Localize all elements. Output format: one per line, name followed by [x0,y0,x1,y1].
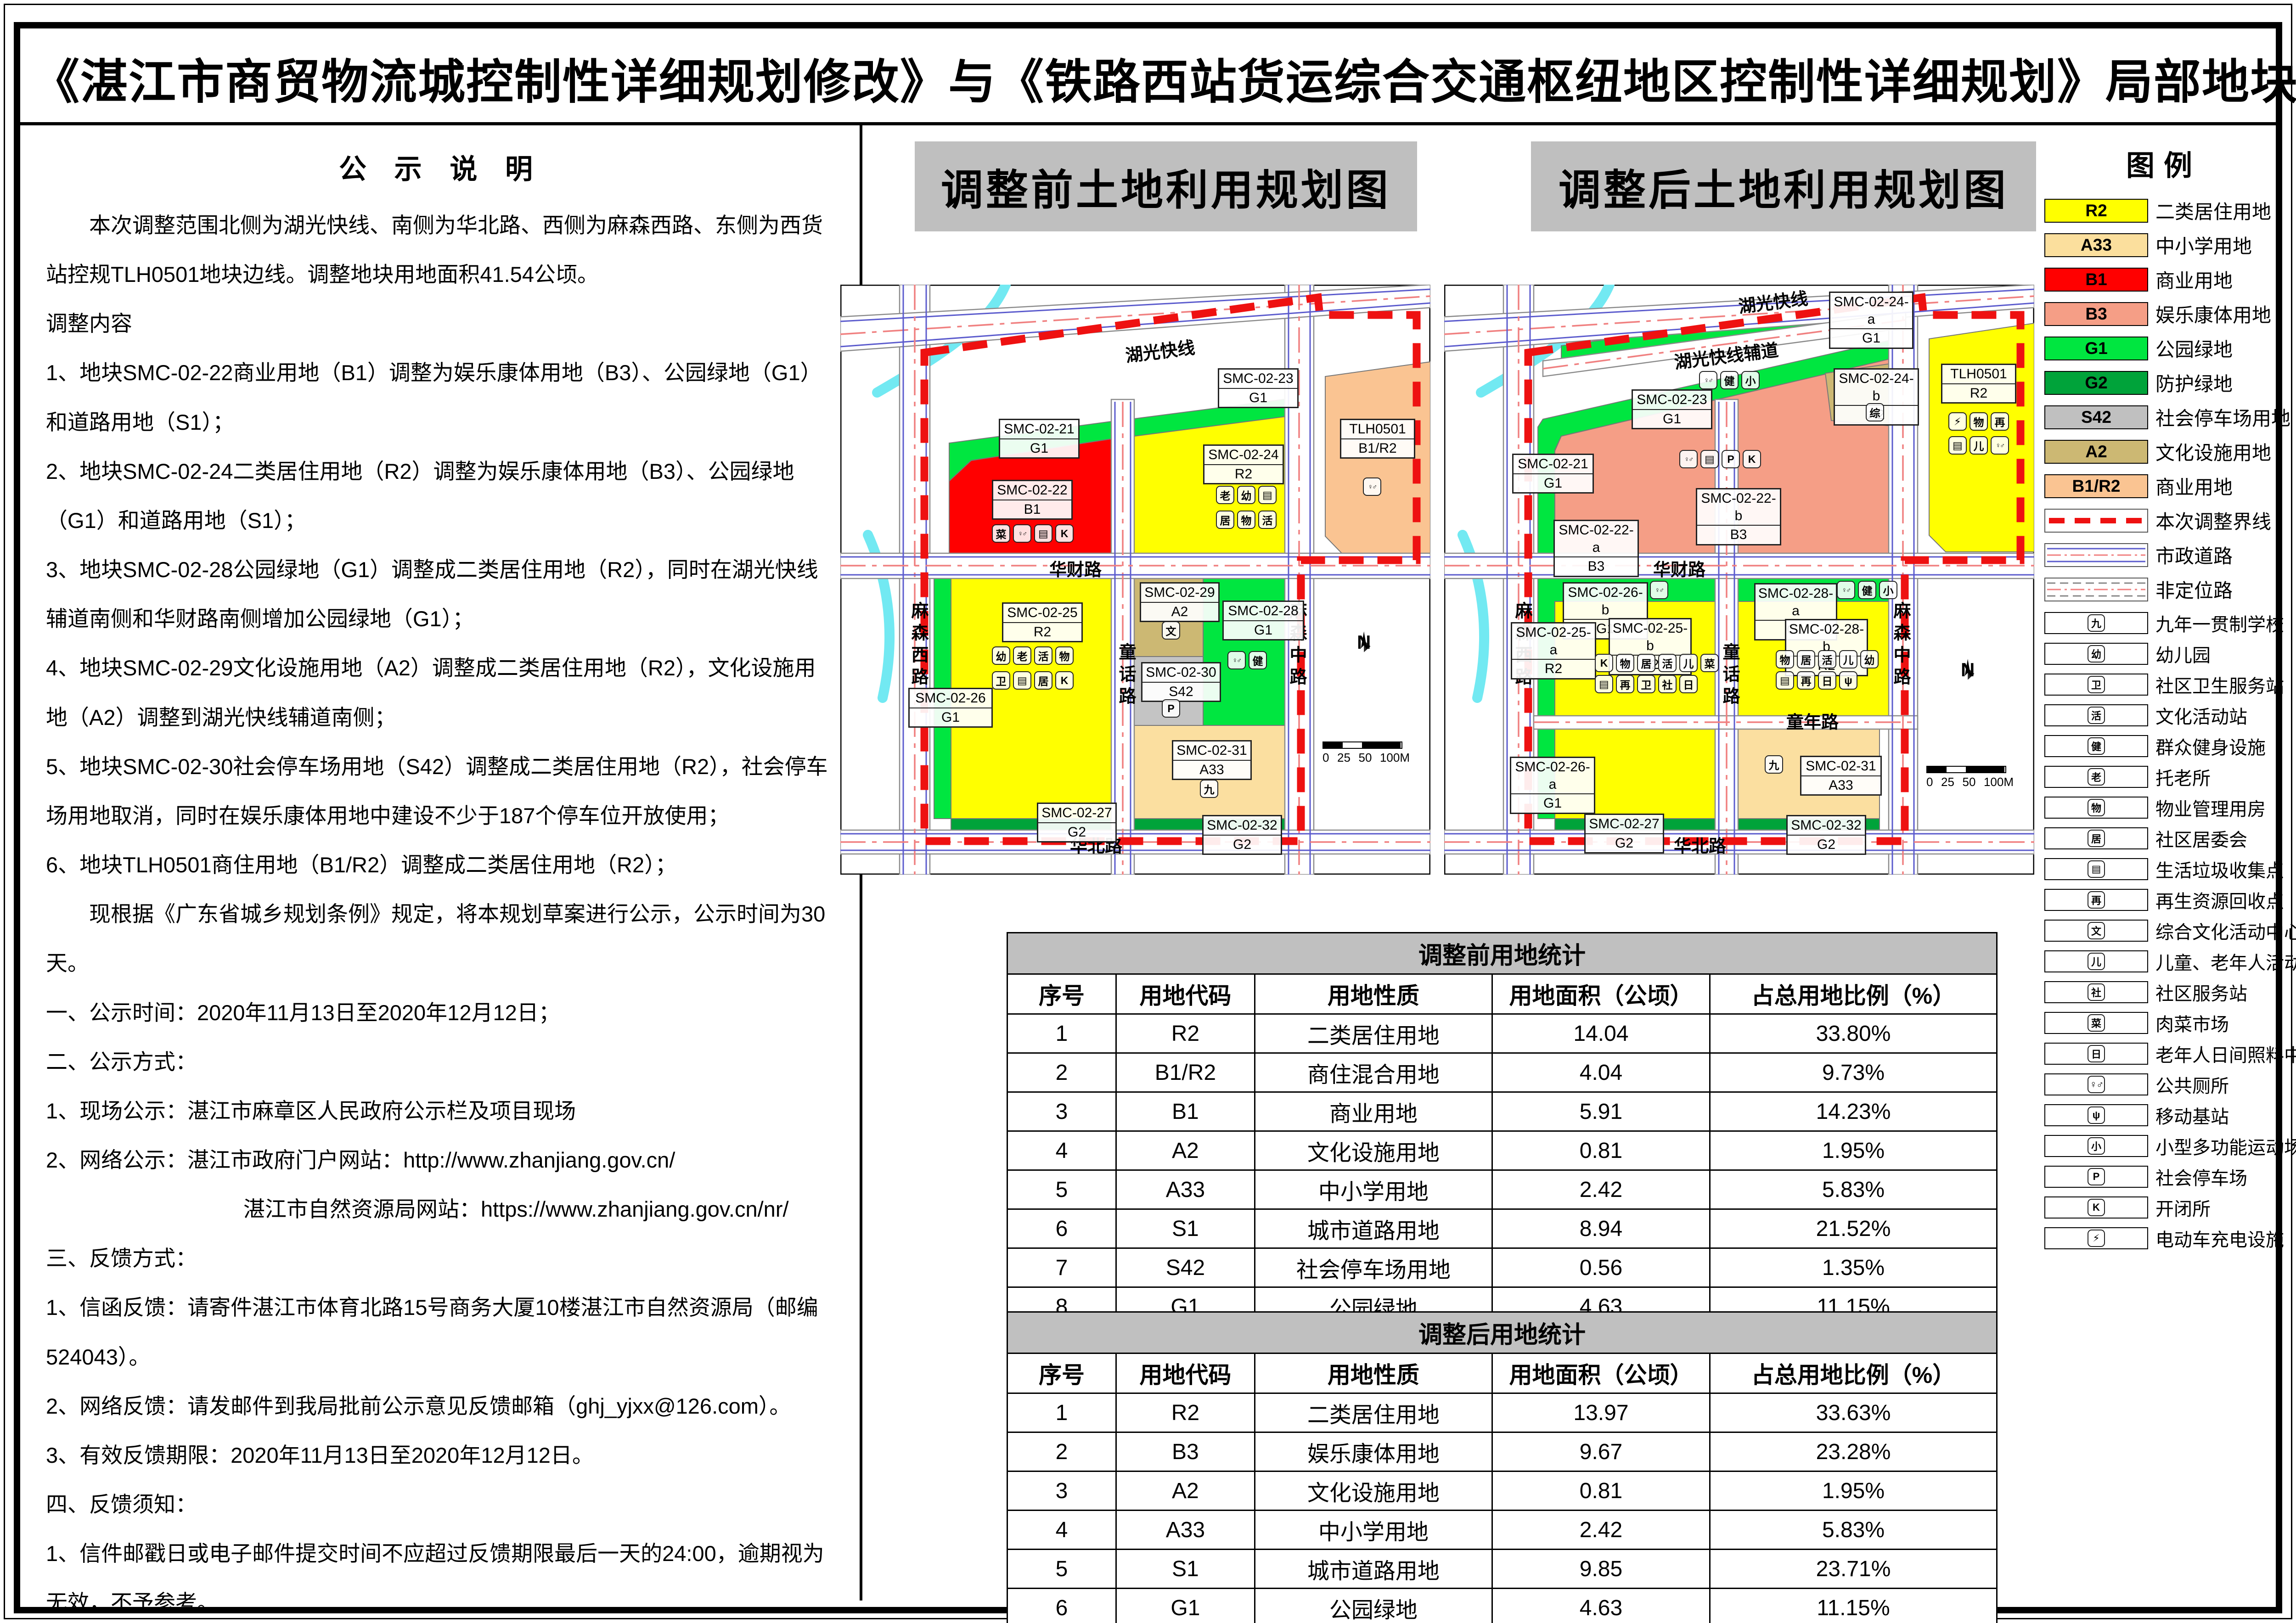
legend-facility-swatch: 活 [2044,704,2148,726]
road-label-huabei: 华北路 [1674,832,1726,857]
legend-facility-item: 儿儿童、老年人活动场地 [2044,948,2283,975]
legend-label: 商业用地 [2155,472,2233,500]
notice-paragraph: 6、地块TLH0501商住用地（B1/R2）调整成二类居住用地（R2）； [46,840,836,889]
notice-paragraph: 本次调整范围北侧为湖光快线、南侧为华北路、西侧为麻森西路、东侧为西货站控规TLH… [46,201,836,299]
toilet-icon: ♀♂ [1363,477,1381,496]
legend-swatch: B1/R2 [2044,474,2148,498]
road-label-masenxi: 麻森西路 [906,601,931,690]
legend-facility-swatch: 老 [2044,766,2148,788]
switch-station-icon: K [2088,1199,2105,1216]
legend-label: 市政道路 [2155,541,2233,569]
notice-paragraph: 2、地块SMC-02-24二类居住用地（R2）调整为娱乐康体用地（B3）、公园绿… [46,447,836,545]
legend-item-b1-r2: B1/R2商业用地 [2044,472,2283,500]
road-label-masenzhong: 麻森中路 [1888,601,1913,690]
table-header: 占总用地比例（%） [1710,1353,1997,1393]
facility-日-icon: 日 [1818,671,1836,690]
facility-幼-icon: 幼 [1860,650,1879,668]
legend-swatch: S42 [2044,405,2148,429]
parcel-label-smc-02-25-a: SMC-02-25-aR2 [1511,622,1596,680]
facility-活-icon: 活 [1258,511,1277,529]
legend-label: 托老所 [2155,764,2211,790]
notice-paragraph: 1、信件邮戳日或电子邮件提交时间不应超过反馈期限最后一天的24:00，逾期视为无… [46,1529,836,1623]
antenna-icon: ψ [1839,671,1857,690]
table-row: 5S1城市道路用地9.8523.71% [1007,1550,1997,1589]
table-row: 1R2二类居住用地13.9733.63% [1007,1393,1997,1432]
facility-物-icon: 物 [1776,650,1794,668]
legend-label: 社会停车场 [2155,1163,2247,1190]
legend-label: 幼儿园 [2155,640,2211,667]
legend-facility-item: 再再生资源回收点 [2044,887,2283,913]
notice-paragraph: 1、信函反馈：请寄件湛江市体育北路15号商务大厦10楼湛江市自然资源局（邮编52… [46,1283,836,1381]
trash-icon: ▤ [1776,671,1794,690]
facility-社-icon: 社 [1658,675,1677,693]
parcel-label-smc-02-21: SMC-02-21G1 [1512,454,1594,494]
map-title-after: 调整后土地利用规划图 [1531,141,2036,231]
toilet-icon: ♀♂ [1699,371,1717,389]
legend-item-s42: S42社会停车场用地 [2044,403,2283,431]
facility-物-icon: 物 [2088,799,2105,816]
legend-label: 二类居住用地 [2155,197,2271,225]
trash-icon: ▤ [2088,860,2105,878]
parcel-label-smc-02-22: SMC-02-22B1 [992,480,1073,520]
legend-facility-item: 菜肉菜市场 [2044,1010,2283,1036]
table-header: 用地代码 [1116,974,1255,1014]
facility-健-icon: 健 [1720,371,1739,389]
trash-icon: ▤ [1700,450,1719,468]
legend-label: 综合文化活动中心 [2155,917,2296,944]
toilet-icon: ♀♂ [1227,651,1246,669]
table-header: 用地面积（公顷） [1492,1353,1710,1393]
legend-label: 文化设施用地 [2155,438,2271,466]
legend-label: 小型多功能运动场地 [2155,1133,2296,1159]
table-row: 3A2文化设施用地0.811.95% [1007,1471,1997,1511]
dashed-road-symbol [2044,578,2148,601]
legend-item-g1: G1公园绿地 [2044,334,2283,362]
legend-item-a2: A2文化设施用地 [2044,438,2283,466]
legend-color-items: R2二类居住用地A33中小学用地B1商业用地B3娱乐康体用地G1公园绿地G2防护… [2044,197,2283,500]
road-label-tongnian: 童年路 [1786,708,1839,733]
parcel-label-smc-02-32: SMC-02-32G2 [1786,815,1866,855]
legend-title: 图例 [2044,142,2283,184]
road-label-huacai: 华财路 [1653,556,1705,581]
legend-panel: 图例 R2二类居住用地A33中小学用地B1商业用地B3娱乐康体用地G1公园绿地G… [2044,142,2283,1256]
parking-icon: P [1162,699,1180,718]
facility-小-icon: 小 [1879,581,1897,599]
facility-活-icon: 活 [1034,646,1052,665]
facility-老-icon: 老 [1013,646,1031,665]
facility-再-icon: 再 [1797,671,1815,690]
table-row: 2B3娱乐康体用地9.6723.28% [1007,1432,1997,1471]
legend-facility-item: ⚡电动车充电设施 [2044,1225,2283,1252]
map-title-before: 调整前土地利用规划图 [915,141,1417,231]
legend-facility-swatch: 九 [2044,612,2148,634]
table-row: 3B1商业用地5.9114.23% [1007,1092,1997,1131]
notice-paragraph: 二、公示方式： [46,1037,836,1086]
notice-paragraph: 1、地块SMC-02-22商业用地（B1）调整为娱乐康体用地（B3）、公园绿地（… [46,348,836,446]
toilet-icon: ♀♂ [1650,581,1668,599]
table-header: 序号 [1007,974,1116,1014]
facility-文-icon: 文 [1162,621,1180,640]
facility-卫-icon: 卫 [992,671,1010,690]
parcel-label-smc-02-21: SMC-02-21G1 [999,419,1080,459]
notice-paragraph: 现根据《广东省城乡规划条例》规定，将本规划草案进行公示，公示时间为30天。 [46,889,836,988]
legend-label: 社区卫生服务站 [2155,671,2284,698]
legend-label: 生活垃圾收集点 [2155,856,2284,882]
legend-line-items: 本次调整界线市政道路非定位路 [2044,506,2283,603]
table-row: 5A33中小学用地2.425.83% [1007,1170,1997,1209]
toilet-icon: ♀♂ [1991,436,2009,455]
facility-九-icon: 九 [2088,614,2105,632]
table-header: 用地代码 [1116,1353,1255,1393]
scale-bar: 02550100M [1926,766,2014,789]
parcel-label-smc-02-23: SMC-02-23G1 [1218,368,1299,408]
parcel-label-smc-02-24: SMC-02-24R2 [1203,444,1284,484]
parking-icon: P [2088,1168,2105,1185]
legend-facility-swatch: 儿 [2044,950,2148,972]
legend-facility-item: 健群众健身设施 [2044,733,2283,759]
legend-label: 社区居委会 [2155,825,2247,852]
legend-label: 中小学用地 [2155,231,2252,259]
facility-小-icon: 小 [1741,371,1760,389]
legend-facility-item: 卫社区卫生服务站 [2044,671,2283,698]
legend-item-r2: R2二类居住用地 [2044,197,2283,225]
notice-paragraph: 4、地块SMC-02-29文化设施用地（A2）调整成二类居住用地（R2），文化设… [46,643,836,741]
legend-swatch: R2 [2044,199,2148,223]
trash-icon: ▤ [1258,486,1277,504]
parcel-label-smc-02-27: SMC-02-27G2 [1037,803,1117,842]
notice-paragraphs: 本次调整范围北侧为湖光快线、南侧为华北路、西侧为麻森西路、东侧为西货站控规TLH… [46,201,836,1623]
facility-九-icon: 九 [1200,780,1218,798]
facility-活-icon: 活 [1658,654,1677,672]
children-elderly-icon: 儿 [1839,650,1857,668]
toilet-icon: ♀♂ [1837,581,1855,599]
land-use-map-after: 湖光快线 湖光快线辅道 华财路 华北路 麻森西路 童话路 麻森中路 童年路 SM… [1444,285,2034,875]
legend-facility-item: 九九年一贯制学校 [2044,610,2283,636]
legend-label: 公园绿地 [2155,334,2233,362]
facility-健-icon: 健 [1858,581,1876,599]
ev-charging-icon: ⚡ [2088,1230,2105,1247]
road-label-huacai: 华财路 [1049,556,1102,581]
legend-facility-item: 日老年人日间照料中心 [2044,1040,2283,1067]
parcel-label-smc-02-29: SMC-02-29A2 [1140,582,1220,622]
antenna-icon: ψ [2088,1106,2105,1124]
facility-健-icon: 健 [2088,737,2105,755]
table-row: 6S1城市道路用地8.9421.52% [1007,1209,1997,1248]
facility-老-icon: 老 [2088,768,2105,786]
land-use-map-before: 湖光快线 华财路 华北路 麻森西路 童话路 麻森中路 SMC-02-21G1 S… [840,285,1430,875]
children-elderly-icon: 儿 [2088,953,2105,970]
parcel-label-smc-02-23: SMC-02-23G1 [1632,389,1712,429]
legend-item-b1: B1商业用地 [2044,265,2283,293]
legend-label: 儿童、老年人活动场地 [2155,948,2296,975]
legend-facility-swatch: ♀♂ [2044,1073,2148,1095]
notice-paragraph: 调整内容 [46,299,836,348]
notice-sheet: 《湛江市商贸物流城控制性详细规划修改》与《铁路西站货运综合交通枢纽地区控制性详细… [0,0,2296,1623]
parcel-label-smc-02-31: SMC-02-31A33 [1800,756,1882,796]
notice-paragraph: 一、公示时间：2020年11月13日至2020年12月12日； [46,988,836,1037]
legend-facility-swatch: 卫 [2044,674,2148,696]
legend-facility-item: 活文化活动站 [2044,702,2283,729]
facility-健-icon: 健 [1249,651,1267,669]
legend-facility-item: K开闭所 [2044,1194,2283,1221]
switch-station-icon: K [1595,654,1613,672]
legend-label: 电动车充电设施 [2155,1225,2284,1252]
legend-label: 社区服务站 [2155,979,2247,1005]
trash-icon: ▤ [1034,524,1052,543]
legend-facility-swatch: 小 [2044,1135,2148,1157]
facility-再-icon: 再 [1991,412,2009,431]
page-title: 《湛江市商贸物流城控制性详细规划修改》与《铁路西站货运综合交通枢纽地区控制性详细… [32,44,2264,112]
facility-社-icon: 社 [2088,983,2105,1001]
title-divider [20,122,2276,125]
legend-label: 再生资源回收点 [2155,887,2284,913]
map-before-drawing [840,285,1430,875]
scale-bar: 02550100M [1322,741,1410,765]
notice-paragraph: 四、反馈须知： [46,1480,836,1529]
legend-facility-swatch: P [2044,1166,2148,1188]
facility-小-icon: 小 [2088,1137,2105,1155]
legend-swatch: B1 [2044,268,2148,292]
legend-facility-item: ♀♂公共厕所 [2044,1071,2283,1098]
legend-facility-swatch: ▤ [2044,858,2148,880]
legend-label: 防护绿地 [2155,369,2233,397]
facility-物-icon: 物 [1237,511,1255,529]
facility-老-icon: 老 [1216,486,1234,504]
facility-居-icon: 居 [1797,650,1815,668]
facility-再-icon: 再 [1616,675,1634,693]
parcel-label-smc-02-32: SMC-02-32G2 [1202,815,1282,855]
facility-居-icon: 居 [2088,830,2105,847]
scale-tick: 0 [1322,751,1329,765]
legend-label: 娱乐康体用地 [2155,300,2271,328]
table-header: 用地性质 [1255,974,1492,1014]
facility-再-icon: 再 [2088,891,2105,909]
legend-label: 本次调整界线 [2155,506,2271,534]
facility-幼-icon: 幼 [992,646,1010,665]
legend-facility-swatch: 文 [2044,920,2148,942]
scale-tick: 100M [1984,775,2014,789]
legend-label: 肉菜市场 [2155,1010,2229,1036]
facility-综-icon: 综 [1866,403,1884,421]
scale-tick: 50 [1358,751,1372,765]
trash-icon: ▤ [1013,671,1031,690]
table-row: 7S42社会停车场用地0.561.35% [1007,1248,1997,1287]
table-after-stats: 调整后用地统计序号用地代码用地性质用地面积（公顷）占总用地比例（%）1R2二类居… [1007,1311,1998,1623]
switch-station-icon: K [1055,524,1074,543]
parcel-label-smc-02-26-a: SMC-02-26-aG1 [1510,757,1595,814]
facility-活-icon: 活 [2088,707,2105,724]
notice-paragraph: 5、地块SMC-02-30社会停车场用地（S42）调整成二类居住用地（R2），社… [46,742,836,840]
notice-heading: 公 示 说 明 [46,147,836,187]
table-title: 调整后用地统计 [1007,1312,1997,1353]
toilet-icon: ♀♂ [1679,450,1698,468]
facility-物-icon: 物 [1970,412,1988,431]
road-symbol [2044,543,2148,567]
legend-label: 九年一贯制学校 [2155,610,2284,636]
notice-paragraph: 3、地块SMC-02-28公园绿地（G1）调整成二类居住用地（R2），同时在湖光… [46,545,836,643]
facility-活-icon: 活 [1818,650,1836,668]
legend-label: 非定位路 [2155,575,2233,603]
parcel-label-smc-02-28: SMC-02-28G1 [1222,601,1304,640]
parking-icon: P [1722,450,1740,468]
legend-facility-item: ▤生活垃圾收集点 [2044,856,2283,882]
facility-卫-icon: 卫 [2088,676,2105,693]
table-row: 6G1公园绿地4.6311.15% [1007,1589,1997,1623]
legend-facility-item: ψ移动基站 [2044,1102,2283,1129]
legend-label: 开闭所 [2155,1194,2211,1221]
parcel-label-tlh0501: TLH0501R2 [1941,364,2016,404]
legend-swatch: G1 [2044,337,2148,360]
road-label-tonghua: 童话路 [1113,643,1138,709]
parcel-label-smc-02-25: SMC-02-25R2 [1002,602,1083,642]
legend-item-b3: B3娱乐康体用地 [2044,300,2283,328]
facility-幼-icon: 幼 [2088,645,2105,663]
legend-item-boundary: 本次调整界线 [2044,506,2283,534]
legend-facility-item: 小小型多功能运动场地 [2044,1133,2283,1159]
table-row: 4A2文化设施用地0.811.95% [1007,1131,1997,1170]
parcel-label-tlh0501: TLH0501B1/R2 [1340,419,1415,459]
table-header: 序号 [1007,1353,1116,1393]
switch-station-icon: K [1055,671,1074,690]
table-row: 4A33中小学用地2.425.83% [1007,1511,1997,1550]
legend-facility-item: 居社区居委会 [2044,825,2283,852]
legend-facility-swatch: 幼 [2044,643,2148,665]
facility-居-icon: 居 [1034,671,1052,690]
legend-facility-item: 文综合文化活动中心 [2044,917,2283,944]
legend-label: 文化活动站 [2155,702,2247,729]
facility-日-icon: 日 [2088,1045,2105,1062]
legend-facility-swatch: 居 [2044,827,2148,849]
north-arrow: N [1357,631,1371,653]
parcel-label-smc-02-30: SMC-02-30S42 [1141,662,1221,702]
facility-居-icon: 居 [1637,654,1655,672]
legend-label: 公共厕所 [2155,1071,2229,1098]
table-title: 调整前用地统计 [1007,933,1997,974]
scale-tick: 100M [1380,751,1410,765]
legend-facility-swatch: 健 [2044,735,2148,757]
scale-tick: 25 [1941,775,1954,789]
legend-facility-item: P社会停车场 [2044,1163,2283,1190]
legend-facility-swatch: 再 [2044,889,2148,911]
facility-九-icon: 九 [1765,755,1783,774]
north-arrow: N [1961,659,1975,681]
scale-tick: 50 [1962,775,1975,789]
table-header: 用地面积（公顷） [1492,974,1710,1014]
parcel-label-smc-02-24-a: SMC-02-24-aG1 [1829,292,1913,349]
notice-panel: 公 示 说 明 本次调整范围北侧为湖光快线、南侧为华北路、西侧为麻森西路、东侧为… [46,147,836,1623]
facility-文-icon: 文 [2088,922,2105,939]
legend-facility-swatch: ψ [2044,1104,2148,1126]
legend-label: 商业用地 [2155,265,2233,293]
facility-菜-icon: 菜 [992,524,1010,543]
legend-item-g2: G2防护绿地 [2044,369,2283,397]
notice-paragraph: 湛江市自然资源局网站：https://www.zhanjiang.gov.cn/… [46,1185,836,1234]
notice-paragraph: 2、网络公示：湛江市政府门户网站：http://www.zhanjiang.go… [46,1135,836,1185]
road-label-tonghua: 童话路 [1717,643,1742,709]
notice-paragraph: 3、有效反馈期限：2020年11月13日至2020年12月12日。 [46,1431,836,1480]
legend-swatch: G2 [2044,371,2148,395]
legend-label: 群众健身设施 [2155,733,2266,759]
toilet-icon: ♀♂ [2088,1076,2105,1093]
toilet-icon: ♀♂ [1013,524,1031,543]
legend-facility-swatch: 社 [2044,981,2148,1003]
legend-swatch: B3 [2044,302,2148,326]
switch-station-icon: K [1743,450,1761,468]
legend-facility-swatch: ⚡ [2044,1227,2148,1249]
legend-label: 老年人日间照料中心 [2155,1040,2296,1067]
table-header: 用地性质 [1255,1353,1492,1393]
legend-facility-item: 幼幼儿园 [2044,640,2283,667]
facility-物-icon: 物 [1055,646,1074,665]
legend-facility-item: 社社区服务站 [2044,979,2283,1005]
children-elderly-icon: 儿 [1679,654,1698,672]
notice-paragraph: 2、网络反馈：请发邮件到我局批前公示意见反馈邮箱（ghj_yjxx@126.co… [46,1382,836,1431]
table-row: 2B1/R2商住混合用地4.049.73% [1007,1053,1997,1092]
table-header: 占总用地比例（%） [1710,974,1997,1014]
legend-label: 社会停车场用地 [2155,403,2290,431]
facility-菜-icon: 菜 [1700,654,1719,672]
legend-icon-items: 九九年一贯制学校幼幼儿园卫社区卫生服务站活文化活动站健群众健身设施老托老所物物业… [2044,610,2283,1252]
trash-icon: ▤ [1948,436,1967,455]
legend-facility-swatch: 菜 [2044,1012,2148,1034]
table-row: 1R2二类居住用地14.0433.80% [1007,1014,1997,1053]
legend-facility-swatch: 日 [2044,1043,2148,1065]
legend-label: 移动基站 [2155,1102,2229,1129]
legend-label: 物业管理用房 [2155,794,2266,821]
facility-卫-icon: 卫 [1637,675,1655,693]
facility-物-icon: 物 [1616,654,1634,672]
legend-item-a33: A33中小学用地 [2044,231,2283,259]
facility-幼-icon: 幼 [1237,486,1255,504]
legend-item-road: 市政道路 [2044,541,2283,569]
trash-icon: ▤ [1595,675,1613,693]
legend-facility-item: 物物业管理用房 [2044,794,2283,821]
boundary-symbol [2044,509,2148,533]
scale-tick: 25 [1337,751,1351,765]
legend-facility-item: 老托老所 [2044,764,2283,790]
parcel-label-smc-02-22-a: SMC-02-22-aB3 [1553,520,1639,577]
parcel-label-smc-02-26: SMC-02-26G1 [908,688,993,728]
ev-charging-icon: ⚡ [1948,412,1967,431]
facility-居-icon: 居 [1216,511,1234,529]
scale-tick: 0 [1926,775,1933,789]
legend-facility-swatch: K [2044,1196,2148,1219]
parcel-label-smc-02-22-b: SMC-02-22-bB3 [1696,488,1781,545]
facility-日-icon: 日 [1679,675,1698,693]
notice-paragraph: 1、现场公示：湛江市麻章区人民政府公示栏及项目现场 [46,1086,836,1135]
legend-swatch: A2 [2044,440,2148,464]
parcel-label-smc-02-27: SMC-02-27G2 [1584,814,1664,854]
notice-paragraph: 三、反馈方式： [46,1234,836,1283]
children-elderly-icon: 儿 [1970,436,1988,455]
legend-swatch: A33 [2044,233,2148,257]
legend-facility-swatch: 物 [2044,797,2148,819]
legend-item-dashed-road: 非定位路 [2044,575,2283,603]
facility-菜-icon: 菜 [2088,1014,2105,1032]
parcel-label-smc-02-31: SMC-02-31A33 [1172,740,1252,780]
